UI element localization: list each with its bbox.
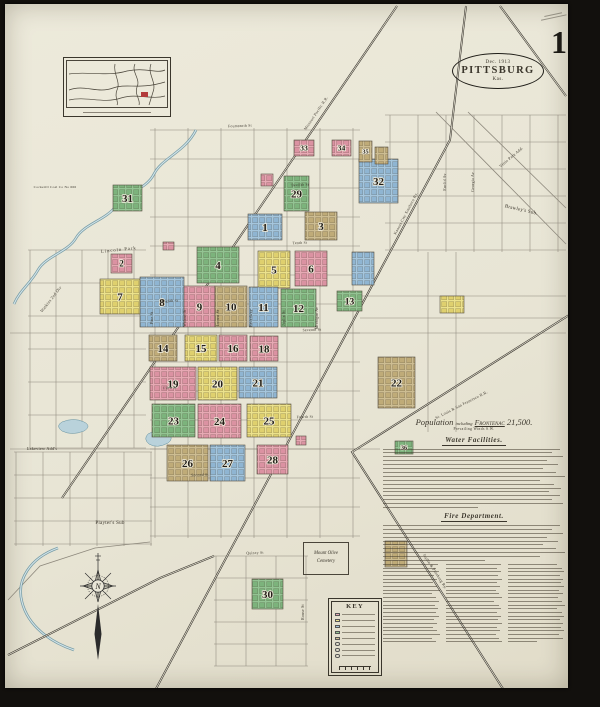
block-number: 13 <box>345 296 355 307</box>
text-line <box>508 582 561 583</box>
inset-map-border <box>66 60 168 108</box>
text-line <box>508 638 562 639</box>
key-entry-line <box>342 626 376 627</box>
key-row <box>335 619 375 622</box>
text-line <box>383 488 561 489</box>
map-label: Eighth St <box>162 299 179 304</box>
map-label: Locust St <box>216 309 220 326</box>
text-line <box>383 503 563 504</box>
key-row <box>335 637 375 640</box>
block-number: 16 <box>228 343 240 355</box>
block-number: 35 <box>362 149 368 156</box>
text-line <box>446 564 502 565</box>
block-number: 5 <box>271 264 277 276</box>
map-label: Watkins 2nd Div <box>39 284 63 313</box>
text-line <box>383 623 437 624</box>
key-symbol-icon <box>335 648 340 651</box>
population-frontenac: Frontenac <box>475 418 505 427</box>
text-line <box>446 608 502 609</box>
text-line <box>508 575 560 576</box>
text-line <box>446 630 500 631</box>
text-line <box>383 464 558 465</box>
road-line <box>468 112 566 208</box>
block-number: 28 <box>267 454 279 466</box>
compass-north-letter: N <box>94 582 101 591</box>
text-line <box>383 564 438 565</box>
block-number: 27 <box>222 458 234 470</box>
block-number: 9 <box>197 301 203 313</box>
text-line <box>383 495 560 496</box>
text-line <box>383 641 436 642</box>
text-line <box>508 586 564 587</box>
text-line <box>383 476 565 477</box>
fire-alarm-box-list <box>383 564 565 645</box>
block-number: 24 <box>214 416 226 428</box>
text-line <box>508 616 564 617</box>
text-line <box>508 623 563 624</box>
map-label: Lakeview Add's <box>27 446 58 451</box>
key-legend-box: KEY <box>328 598 382 676</box>
block-number: 2 <box>119 259 124 269</box>
text-line <box>508 593 562 594</box>
text-line <box>383 449 560 450</box>
text-line <box>446 612 498 613</box>
text-line <box>446 616 501 617</box>
map-photo: { "sheet": { "number": "1" }, "title_ova… <box>0 0 600 707</box>
map-label: Joplin St <box>282 309 286 325</box>
map-label: Michigan Av <box>315 307 319 329</box>
key-rows <box>335 611 375 658</box>
text-line <box>446 605 499 606</box>
text-line <box>383 612 436 613</box>
text-line <box>383 605 435 606</box>
map-label: Georgia Av <box>471 172 475 192</box>
text-line <box>383 579 437 580</box>
text-line <box>383 556 540 557</box>
text-line <box>383 548 556 549</box>
key-entry-line <box>342 620 376 621</box>
map-block <box>375 147 388 164</box>
block-number: 3 <box>318 221 324 233</box>
text-line <box>446 586 500 587</box>
text-line <box>508 564 557 565</box>
text-line <box>508 579 563 580</box>
map-label: Cockerill Coal Co No 666 <box>34 185 77 189</box>
key-entry-line <box>342 650 376 651</box>
text-line <box>508 608 557 609</box>
text-line <box>508 619 560 620</box>
map-label: Lincoln Park <box>101 245 137 254</box>
map-label: Broadway <box>249 309 253 327</box>
text-line <box>383 597 436 598</box>
title-oval: Dec. 1913 PITTSBURG Kas. <box>452 53 544 89</box>
text-line <box>383 593 432 594</box>
text-line <box>446 627 497 628</box>
block-number: 10 <box>226 301 238 313</box>
inset-locator-map <box>63 57 171 117</box>
text-line <box>508 627 561 628</box>
population-line: Population including Frontenac 21,500. <box>383 418 565 427</box>
text-line <box>508 590 559 591</box>
block-number: 20 <box>212 378 224 390</box>
key-symbol-icon <box>335 654 340 657</box>
text-line <box>383 560 485 561</box>
text-line <box>446 571 501 572</box>
text-line <box>383 575 434 576</box>
block-number: 21 <box>253 377 264 389</box>
text-line <box>383 491 549 492</box>
text-line <box>508 612 561 613</box>
text-line <box>446 641 503 642</box>
block-number: 11 <box>258 302 268 314</box>
map-label: Twelfth St <box>291 183 310 188</box>
water-facilities-paragraph <box>383 449 565 508</box>
text-line <box>383 541 558 542</box>
text-line <box>383 616 439 617</box>
key-row <box>335 631 375 634</box>
text-line <box>446 575 499 576</box>
population-including: including <box>456 421 473 426</box>
map-label: Playter's Sub <box>95 521 125 526</box>
block-number: 18 <box>259 343 271 355</box>
inset-map-roads <box>67 61 167 107</box>
block-number: 32 <box>373 176 385 188</box>
compass-rose: N <box>71 548 125 668</box>
key-entry-line <box>342 644 376 645</box>
block-number: 6 <box>308 263 314 275</box>
text-line <box>383 472 556 473</box>
text-line <box>446 623 502 624</box>
map-label: Second St <box>191 473 209 478</box>
key-entry-line <box>342 655 376 656</box>
text-line <box>508 605 565 606</box>
key-color-swatch <box>335 631 340 634</box>
text-line <box>383 460 547 461</box>
key-color-swatch <box>335 613 340 616</box>
key-row <box>335 625 375 628</box>
text-line <box>446 597 503 598</box>
text-line <box>446 590 496 591</box>
title-state: Kas. <box>453 77 543 82</box>
key-color-swatch <box>335 619 340 622</box>
block-number: 30 <box>262 589 274 601</box>
text-line <box>383 601 439 602</box>
text-line <box>508 601 562 602</box>
text-line <box>383 456 563 457</box>
text-line <box>446 601 495 602</box>
block-number: 4 <box>215 260 221 272</box>
block-number: 7 <box>117 291 123 303</box>
block-number: 12 <box>293 303 305 315</box>
map-label: Quincy St <box>246 551 264 556</box>
key-color-swatch <box>335 625 340 628</box>
text-line <box>383 537 547 538</box>
map-label: Euclid Av <box>443 173 447 190</box>
text-line <box>508 641 536 642</box>
block-number: 1 <box>262 222 268 234</box>
compass-rose-graphic: N <box>71 548 125 668</box>
block-number: 29 <box>291 188 303 200</box>
text-line <box>446 593 500 594</box>
text-line <box>446 634 496 635</box>
cemetery-line2: Cemetery <box>317 560 335 565</box>
population-prefix: Population <box>416 417 454 427</box>
block-number: 25 <box>264 415 276 427</box>
key-scale-bar <box>339 666 372 670</box>
prevailing-winds: Prevailing Winds S.W. <box>383 428 565 432</box>
map-label: Rouse St <box>301 604 305 620</box>
text-line <box>383 590 440 591</box>
key-legend-border: KEY <box>331 601 379 673</box>
map-block <box>440 296 464 313</box>
map-label: Seventh St <box>302 328 322 333</box>
map-block <box>261 174 273 186</box>
block-number: 34 <box>338 144 346 153</box>
notes-panel: Population including Frontenac 21,500. P… <box>383 418 565 645</box>
water-facilities-heading: Water Facilities. <box>442 437 506 446</box>
key-row <box>335 613 375 616</box>
block-number: 31 <box>122 193 133 205</box>
text-line <box>383 484 554 485</box>
map-block <box>352 252 374 285</box>
block-number: 22 <box>391 377 403 389</box>
map-label: Walnut St <box>183 309 187 327</box>
text-line <box>383 452 552 453</box>
block-number: 15 <box>196 343 208 355</box>
text-line <box>508 571 564 572</box>
cemetery-box: Mount Olive Cemetery <box>303 542 349 575</box>
title-city: PITTSBURG <box>453 65 543 76</box>
text-line <box>383 480 540 481</box>
key-symbol-icon <box>335 642 340 645</box>
key-entry-line <box>342 632 376 633</box>
inset-city-marker <box>141 92 148 97</box>
map-block <box>296 436 306 445</box>
text-line <box>446 638 500 639</box>
text-line <box>383 468 543 469</box>
block-number: 14 <box>158 343 170 355</box>
text-line <box>383 630 437 631</box>
key-row <box>335 654 375 657</box>
fire-department-paragraph <box>383 525 565 561</box>
key-color-swatch <box>335 637 340 640</box>
pond-shape <box>59 420 89 434</box>
block-number: 26 <box>182 458 194 470</box>
map-sheet-paper: 1234567891011121314151618192021222324252… <box>5 4 568 688</box>
key-row <box>335 648 375 651</box>
text-line <box>383 544 543 545</box>
text-line <box>446 568 498 569</box>
population-value: 21,500. <box>507 417 533 427</box>
sheet-number: 1 <box>551 24 567 61</box>
text-line <box>383 568 436 569</box>
text-line <box>383 507 478 508</box>
block-number: 33 <box>300 144 308 153</box>
map-label: Tenth St <box>293 241 309 246</box>
key-entry-line <box>342 638 376 639</box>
text-line <box>383 533 563 534</box>
text-line <box>383 582 433 583</box>
cemetery-line1: Mount Olive <box>314 552 338 557</box>
block-number: 23 <box>168 415 180 427</box>
text-line <box>383 499 552 500</box>
map-block <box>163 242 174 250</box>
fire-department-heading: Fire Department. <box>441 513 507 522</box>
text-line <box>383 627 433 628</box>
text-line <box>383 619 434 620</box>
text-line <box>383 638 432 639</box>
text-line <box>383 586 437 587</box>
map-label: Fourth St <box>297 415 314 420</box>
map-label: Fourteenth St <box>228 124 253 129</box>
text-line <box>446 619 499 620</box>
text-line <box>508 597 558 598</box>
map-label: Pine St <box>150 311 154 324</box>
text-line <box>383 529 552 530</box>
road-line <box>436 112 566 244</box>
text-line <box>383 525 560 526</box>
text-line <box>508 634 559 635</box>
key-row <box>335 642 375 645</box>
text-line <box>383 552 565 553</box>
text-line <box>508 568 561 569</box>
text-line <box>446 582 497 583</box>
map-label: Fifth St <box>163 386 177 390</box>
map-label: Brawley's Sub. <box>504 204 538 216</box>
text-line <box>383 571 439 572</box>
inset-caption-line <box>83 112 151 113</box>
text-line <box>508 630 564 631</box>
key-entry-line <box>342 614 376 615</box>
text-line <box>383 608 438 609</box>
text-line <box>446 579 502 580</box>
text-line <box>383 634 440 635</box>
